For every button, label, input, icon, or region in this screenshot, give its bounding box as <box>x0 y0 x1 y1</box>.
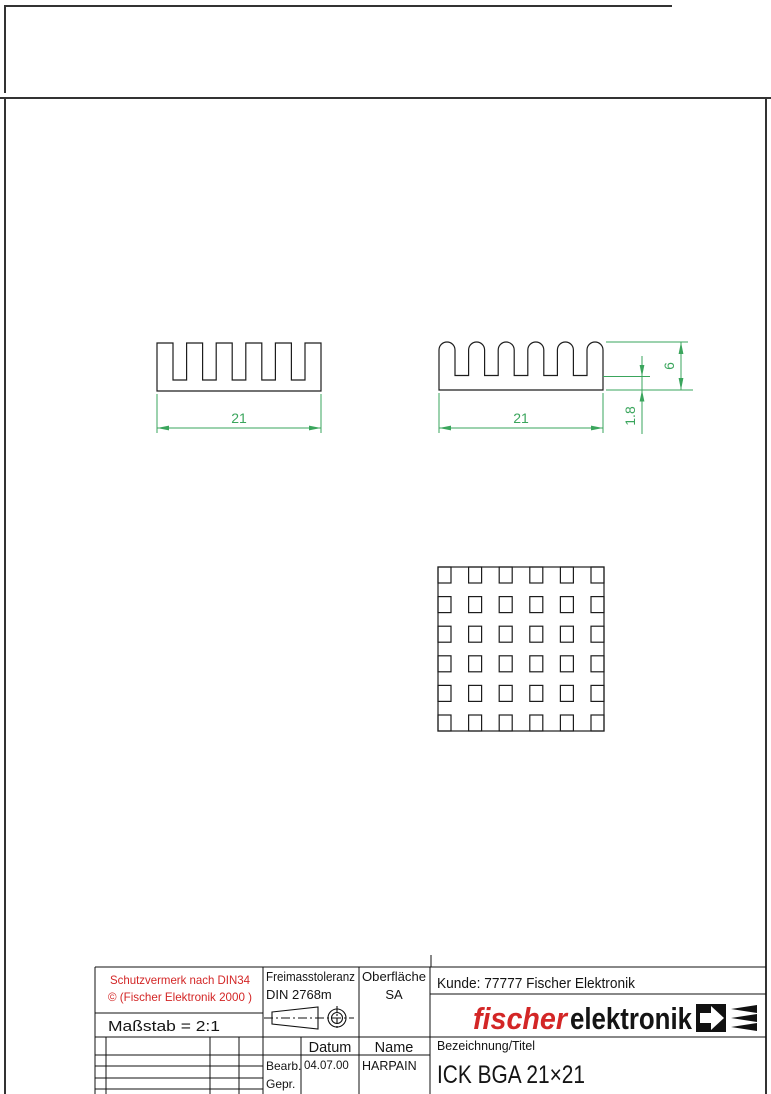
checked-label: Gepr. <box>266 1077 295 1091</box>
pin-fin-cell <box>469 597 482 613</box>
pin-fin-cell <box>530 715 543 731</box>
fischer-logo-mark-icon <box>696 1004 757 1032</box>
pin-fin-cell <box>530 656 543 672</box>
tolerance-value: DIN 2768m <box>266 987 332 1002</box>
pin-fin-cell <box>530 626 543 642</box>
customer-line: Kunde: 77777 Fischer Elektronik <box>437 975 635 992</box>
pin-grid-outline <box>438 567 604 731</box>
bottom-view <box>438 567 604 731</box>
pin-grid <box>438 567 604 731</box>
side-base-dimension: 1.8 <box>603 356 650 434</box>
title-block: Schutzvermerk nach DIN34 © (Fischer Elek… <box>95 967 766 1094</box>
side-width-dim-label: 21 <box>513 410 529 426</box>
pin-fin-cell <box>560 685 573 701</box>
pin-fin-cell <box>560 597 573 613</box>
side-width-dimension: 21 <box>439 393 603 433</box>
pin-fin-cell <box>438 656 451 672</box>
date-header: Datum <box>309 1040 352 1056</box>
side-height-dim-label: 6 <box>661 362 677 370</box>
tolerance-label: Freimasstoleranz <box>266 970 355 984</box>
pin-fin-cell <box>499 685 512 701</box>
pin-fin-cell <box>560 567 573 583</box>
logo-text-fischer: fischer <box>473 1001 569 1036</box>
pin-fin-cell <box>438 597 451 613</box>
designation-label: Bezeichnung/Titel <box>437 1039 535 1053</box>
pin-fin-cell <box>530 567 543 583</box>
projection-symbol-icon <box>264 1006 354 1030</box>
surface-value: SA <box>385 987 403 1002</box>
front-view-profile <box>157 343 321 391</box>
pin-fin-cell <box>499 656 512 672</box>
pin-fin-cell <box>438 715 451 731</box>
pin-fin-cell <box>591 626 604 642</box>
pin-fin-cell <box>499 715 512 731</box>
protection-note-line2: © (Fischer Elektronik 2000 ) <box>108 990 252 1004</box>
pin-fin-cell <box>591 715 604 731</box>
pin-fin-cell <box>591 567 604 583</box>
drawing-title: ICK BGA 21×21 <box>437 1061 585 1089</box>
side-view-profile <box>439 342 603 390</box>
pin-fin-cell <box>469 685 482 701</box>
pin-fin-cell <box>560 626 573 642</box>
editor-label: Bearb. <box>266 1059 301 1073</box>
pin-fin-cell <box>438 567 451 583</box>
front-view: 21 <box>157 343 321 433</box>
drawing-sheet: 21 21 6 1.8 <box>0 0 771 1094</box>
pin-fin-cell <box>438 685 451 701</box>
pin-fin-cell <box>499 626 512 642</box>
pin-fin-cell <box>499 597 512 613</box>
surface-label: Oberfläche <box>362 970 426 984</box>
name-header: Name <box>375 1040 414 1056</box>
pin-fin-cell <box>469 626 482 642</box>
pin-fin-cell <box>530 597 543 613</box>
front-width-dimension: 21 <box>157 394 321 433</box>
protection-note-line1: Schutzvermerk nach DIN34 <box>110 973 250 987</box>
fischer-elektronik-logo: fischer elektronik <box>473 1001 757 1036</box>
front-width-dim-label: 21 <box>231 410 247 426</box>
sheet-frame <box>0 6 771 1094</box>
editor-date: 04.07.00 <box>304 1060 349 1072</box>
pin-fin-cell <box>499 567 512 583</box>
pin-fin-cell <box>469 567 482 583</box>
pin-fin-cell <box>591 656 604 672</box>
side-view: 21 6 1.8 <box>439 342 693 434</box>
pin-fin-cell <box>591 597 604 613</box>
pin-fin-cell <box>530 685 543 701</box>
side-base-dim-label: 1.8 <box>622 406 638 426</box>
pin-fin-cell <box>591 685 604 701</box>
scale-label: Maßstab = 2:1 <box>108 1018 220 1035</box>
pin-fin-cell <box>560 656 573 672</box>
editor-name: HARPAIN <box>362 1059 417 1073</box>
top-partial-box <box>5 6 672 93</box>
pin-fin-cell <box>560 715 573 731</box>
pin-fin-cell <box>438 626 451 642</box>
pin-fin-cell <box>469 656 482 672</box>
logo-text-elektronik: elektronik <box>570 1001 693 1036</box>
side-height-dimension: 6 <box>606 342 693 390</box>
pin-fin-cell <box>469 715 482 731</box>
